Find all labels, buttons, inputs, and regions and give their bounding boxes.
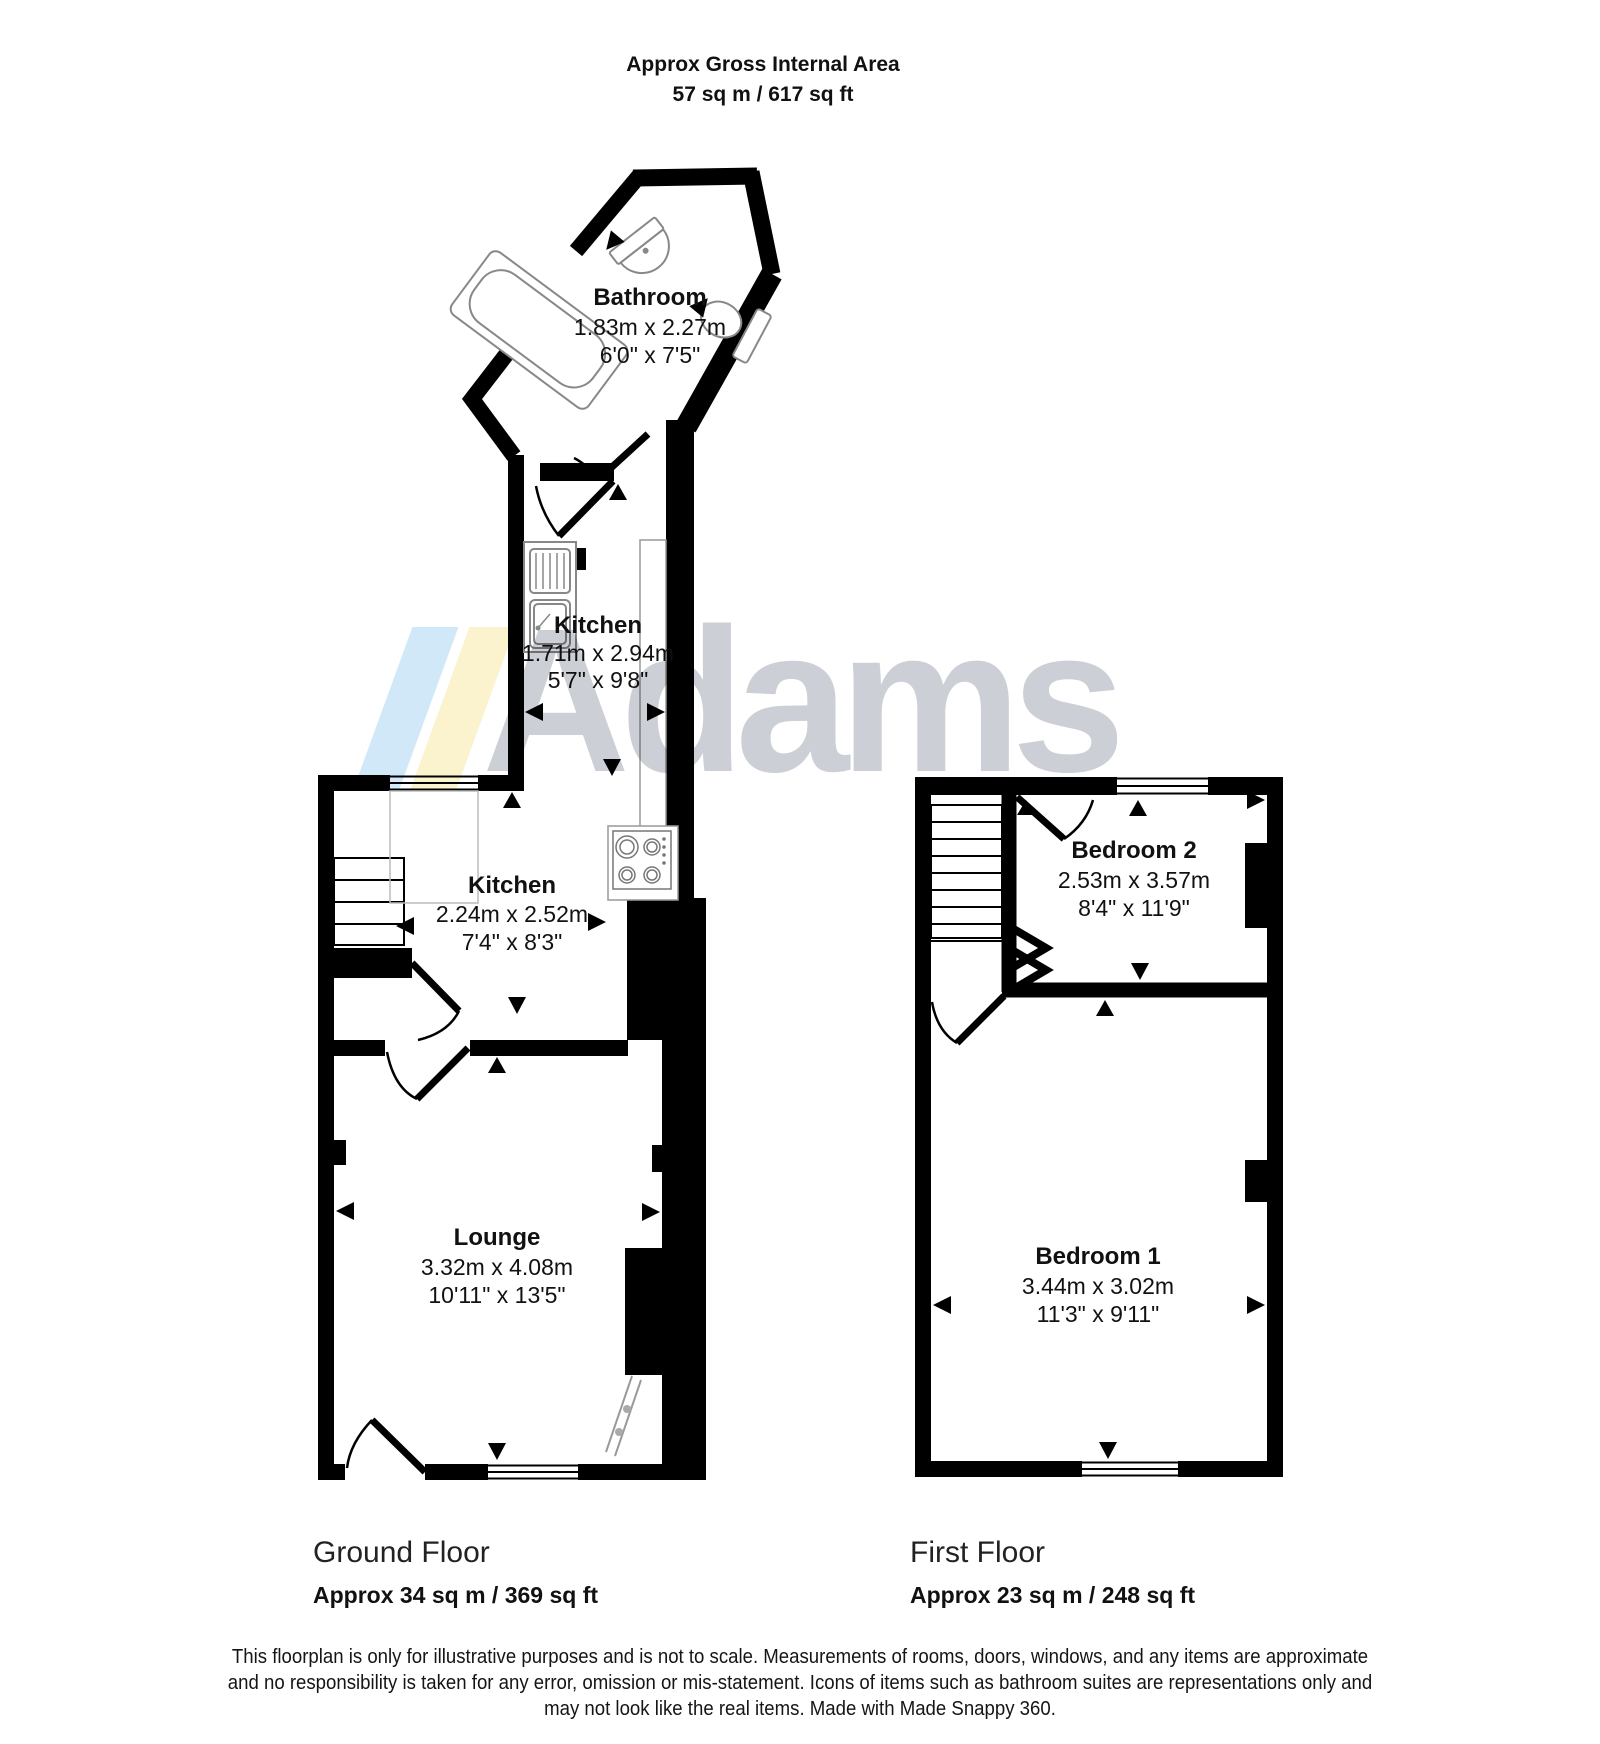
page-title: Approx Gross Internal Area 57 sq m / 617… [626,50,899,110]
title-line2: 57 sq m / 617 sq ft [626,80,899,110]
bedroom2-dim-imperial: 8'4" x 11'9" [1078,895,1190,921]
kitchen-rear-label: Kitchen [554,612,642,639]
lounge-chimney-breast [625,1248,706,1375]
floorplan-canvas: Bathroom 1.83m x 2.27m 6'0" x 7'5" Kitch… [0,0,1600,1744]
bedroom2-window [1117,777,1208,795]
kitchen-main-dim-metric: 2.24m x 2.52m [436,901,588,927]
hob-icon [608,826,678,900]
bathroom-dim-imperial: 6'0" x 7'5" [600,342,701,368]
first-floor-header: First Floor Approx 23 sq m / 248 sq ft [910,1536,1195,1609]
bathroom-dim-metric: 1.83m x 2.27m [574,314,726,340]
kitchen-main-dim-imperial: 7'4" x 8'3" [462,929,563,955]
disclaimer-text: This floorplan is only for illustrative … [185,1644,1416,1722]
first-floor-name: First Floor [910,1536,1195,1570]
front-window [390,775,478,791]
disclaimer-line1: This floorplan is only for illustrative … [228,1644,1372,1670]
bedroom2-label: Bedroom 2 [1071,837,1196,864]
lounge-label: Lounge [454,1224,541,1251]
floorplan-page: Bathroom 1.83m x 2.27m 6'0" x 7'5" Kitch… [0,0,1600,1744]
lounge-window [488,1464,578,1480]
first-floor-plan: Bedroom 2 2.53m x 3.57m 8'4" x 11'9" Bed… [915,777,1283,1477]
bedroom2-dim-metric: 2.53m x 3.57m [1058,867,1210,893]
kitchen-main-label: Kitchen [468,872,556,899]
ground-floor-header: Ground Floor Approx 34 sq m / 369 sq ft [313,1536,598,1609]
ground-floor-area: Approx 34 sq m / 369 sq ft [313,1582,598,1609]
ground-floor-name: Ground Floor [313,1536,598,1570]
kitchen-rear-dim-imperial: 5'7" x 9'8" [548,667,649,693]
bedroom1-dim-imperial: 11'3" x 9'11" [1037,1301,1160,1327]
kitchen-chimney-breast [627,898,706,1040]
lounge-dim-metric: 3.32m x 4.08m [421,1254,573,1280]
bedroom1-dim-metric: 3.44m x 3.02m [1022,1273,1174,1299]
ground-floor-plan: Bathroom 1.83m x 2.27m 6'0" x 7'5" Kitch… [318,168,780,1481]
bedroom1-chimney-breast [1245,1160,1283,1202]
bedroom1-window [1082,1461,1178,1477]
lounge-dim-imperial: 10'11" x 13'5" [428,1282,565,1308]
disclaimer-line2: and no responsibility is taken for any e… [228,1670,1372,1696]
bathroom-label: Bathroom [593,284,706,311]
bedroom2-chimney-breast [1245,843,1283,928]
bedroom1-label: Bedroom 1 [1035,1243,1160,1270]
disclaimer-line3: may not look like the real items. Made w… [228,1696,1372,1722]
title-line1: Approx Gross Internal Area [626,50,899,80]
front-door-opening [345,1463,425,1481]
kitchen-rear-dim-metric: 1.71m x 2.94m [522,640,674,666]
first-floor-area: Approx 23 sq m / 248 sq ft [910,1582,1195,1609]
